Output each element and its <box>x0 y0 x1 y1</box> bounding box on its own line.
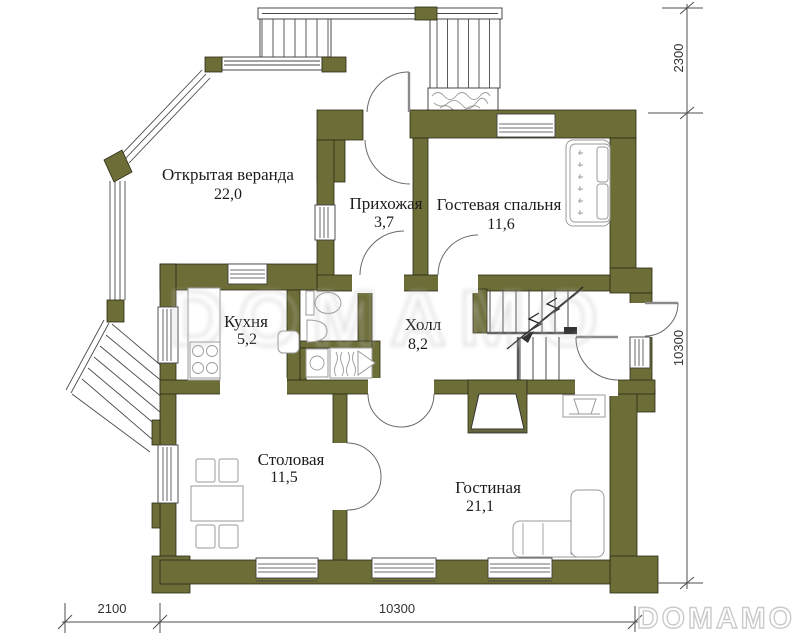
dining-left-window <box>158 445 178 503</box>
corner-sofa <box>513 490 604 557</box>
left-railing <box>110 181 125 300</box>
bedroom-window <box>497 114 555 137</box>
watermark-logo: DOMAMO <box>637 602 795 635</box>
veranda-post <box>322 57 346 72</box>
chair <box>219 525 238 548</box>
floor-plan-drawing: Открытая веранда 22,0 Прихожая 3,7 Госте… <box>0 0 800 640</box>
floor-plan-page: Открытая веранда 22,0 Прихожая 3,7 Госте… <box>0 0 800 640</box>
chair <box>196 459 215 482</box>
bottom-window-2 <box>372 558 436 581</box>
dining-living-double-door <box>347 443 381 510</box>
room-area-living: 21,1 <box>466 498 494 515</box>
veranda-post <box>205 57 222 72</box>
room-area-dining: 11,5 <box>270 469 297 486</box>
diagonal-railing <box>121 70 210 163</box>
veranda-top-rail <box>222 57 322 70</box>
stairhall-right-window <box>630 337 650 368</box>
room-area-veranda: 22,0 <box>214 186 242 203</box>
fireplace <box>468 380 527 433</box>
room-label-veranda: Открытая веранда <box>162 165 294 184</box>
room-label-living: Гостиная <box>455 478 521 497</box>
porch-post <box>415 7 437 20</box>
entry-to-hall-door <box>360 231 404 275</box>
dim-stairs-width: 2100 <box>98 601 127 616</box>
bedroom-door <box>438 235 478 275</box>
top-porch <box>222 8 502 112</box>
watermark-center: DOMAMO <box>169 274 611 362</box>
room-label-entry: Прихожая <box>350 194 423 213</box>
entrance-door <box>365 72 410 184</box>
bottom-window-3 <box>488 558 552 581</box>
veranda-post <box>107 300 124 322</box>
entry-window <box>315 205 335 240</box>
dim-right-side: 10300 <box>671 330 686 366</box>
flower-bed <box>428 88 498 112</box>
chair <box>219 459 238 482</box>
dining-table <box>191 486 243 521</box>
room-area-entry: 3,7 <box>374 214 394 231</box>
outdoor-side-stairs <box>66 320 164 452</box>
bed <box>566 140 610 226</box>
dim-bottom-side: 10300 <box>379 601 415 616</box>
desk <box>563 395 605 417</box>
veranda-post <box>104 150 132 182</box>
bottom-window-1 <box>256 558 318 581</box>
room-label-dining: Столовая <box>258 450 325 469</box>
hall-dining-double-door <box>368 394 434 427</box>
dining-set <box>191 459 243 548</box>
room-label-guest-bedroom: Гостевая спальня <box>437 195 562 214</box>
left-porch-steps <box>260 19 331 57</box>
room-area-guest-bedroom: 11,6 <box>487 216 514 233</box>
chair <box>196 525 215 548</box>
dim-porch-depth: 2300 <box>671 44 686 73</box>
